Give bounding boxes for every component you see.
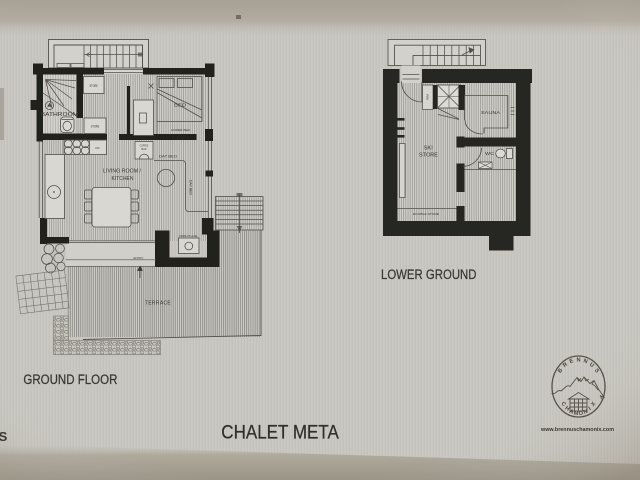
svg-text:WC: WC: [485, 151, 494, 156]
svg-text:DAY BED: DAY BED: [159, 155, 178, 159]
svg-text:WM: WM: [426, 93, 430, 100]
svg-text:SKI: SKI: [424, 145, 433, 151]
svg-text:KITCHEN: KITCHEN: [112, 176, 134, 182]
svg-text:N: N: [576, 358, 580, 364]
svg-text:STORE: STORE: [419, 152, 438, 158]
svg-text:BED: BED: [174, 102, 187, 108]
svg-text:LOWER GROUND: LOWER GROUND: [381, 267, 477, 283]
svg-text:LIVING ROOM /: LIVING ROOM /: [103, 169, 141, 175]
svg-text:BATHROOM: BATHROOM: [41, 112, 79, 118]
svg-text:STORE: STORE: [91, 124, 100, 128]
svg-text:CHALET META: CHALET META: [221, 422, 339, 443]
svg-text:ENTRY: ENTRY: [134, 256, 144, 260]
svg-text:STORE: STORE: [89, 84, 98, 88]
svg-text:DOUBLE STORE: DOUBLE STORE: [413, 212, 439, 216]
svg-text:www.brennuschamonix.com: www.brennuschamonix.com: [540, 427, 614, 433]
svg-text:DAY BED: DAY BED: [189, 180, 193, 196]
svg-text:UNDER BED: UNDER BED: [171, 128, 190, 132]
svg-text:IS: IS: [0, 429, 8, 444]
svg-text:FIRE PLACE: FIRE PLACE: [180, 234, 198, 238]
svg-text:GROUND FLOOR: GROUND FLOOR: [23, 372, 117, 388]
svg-text:BAR: BAR: [142, 147, 148, 151]
svg-text:SAUNA: SAUNA: [481, 110, 501, 115]
svg-text:TERRACE: TERRACE: [145, 300, 171, 306]
